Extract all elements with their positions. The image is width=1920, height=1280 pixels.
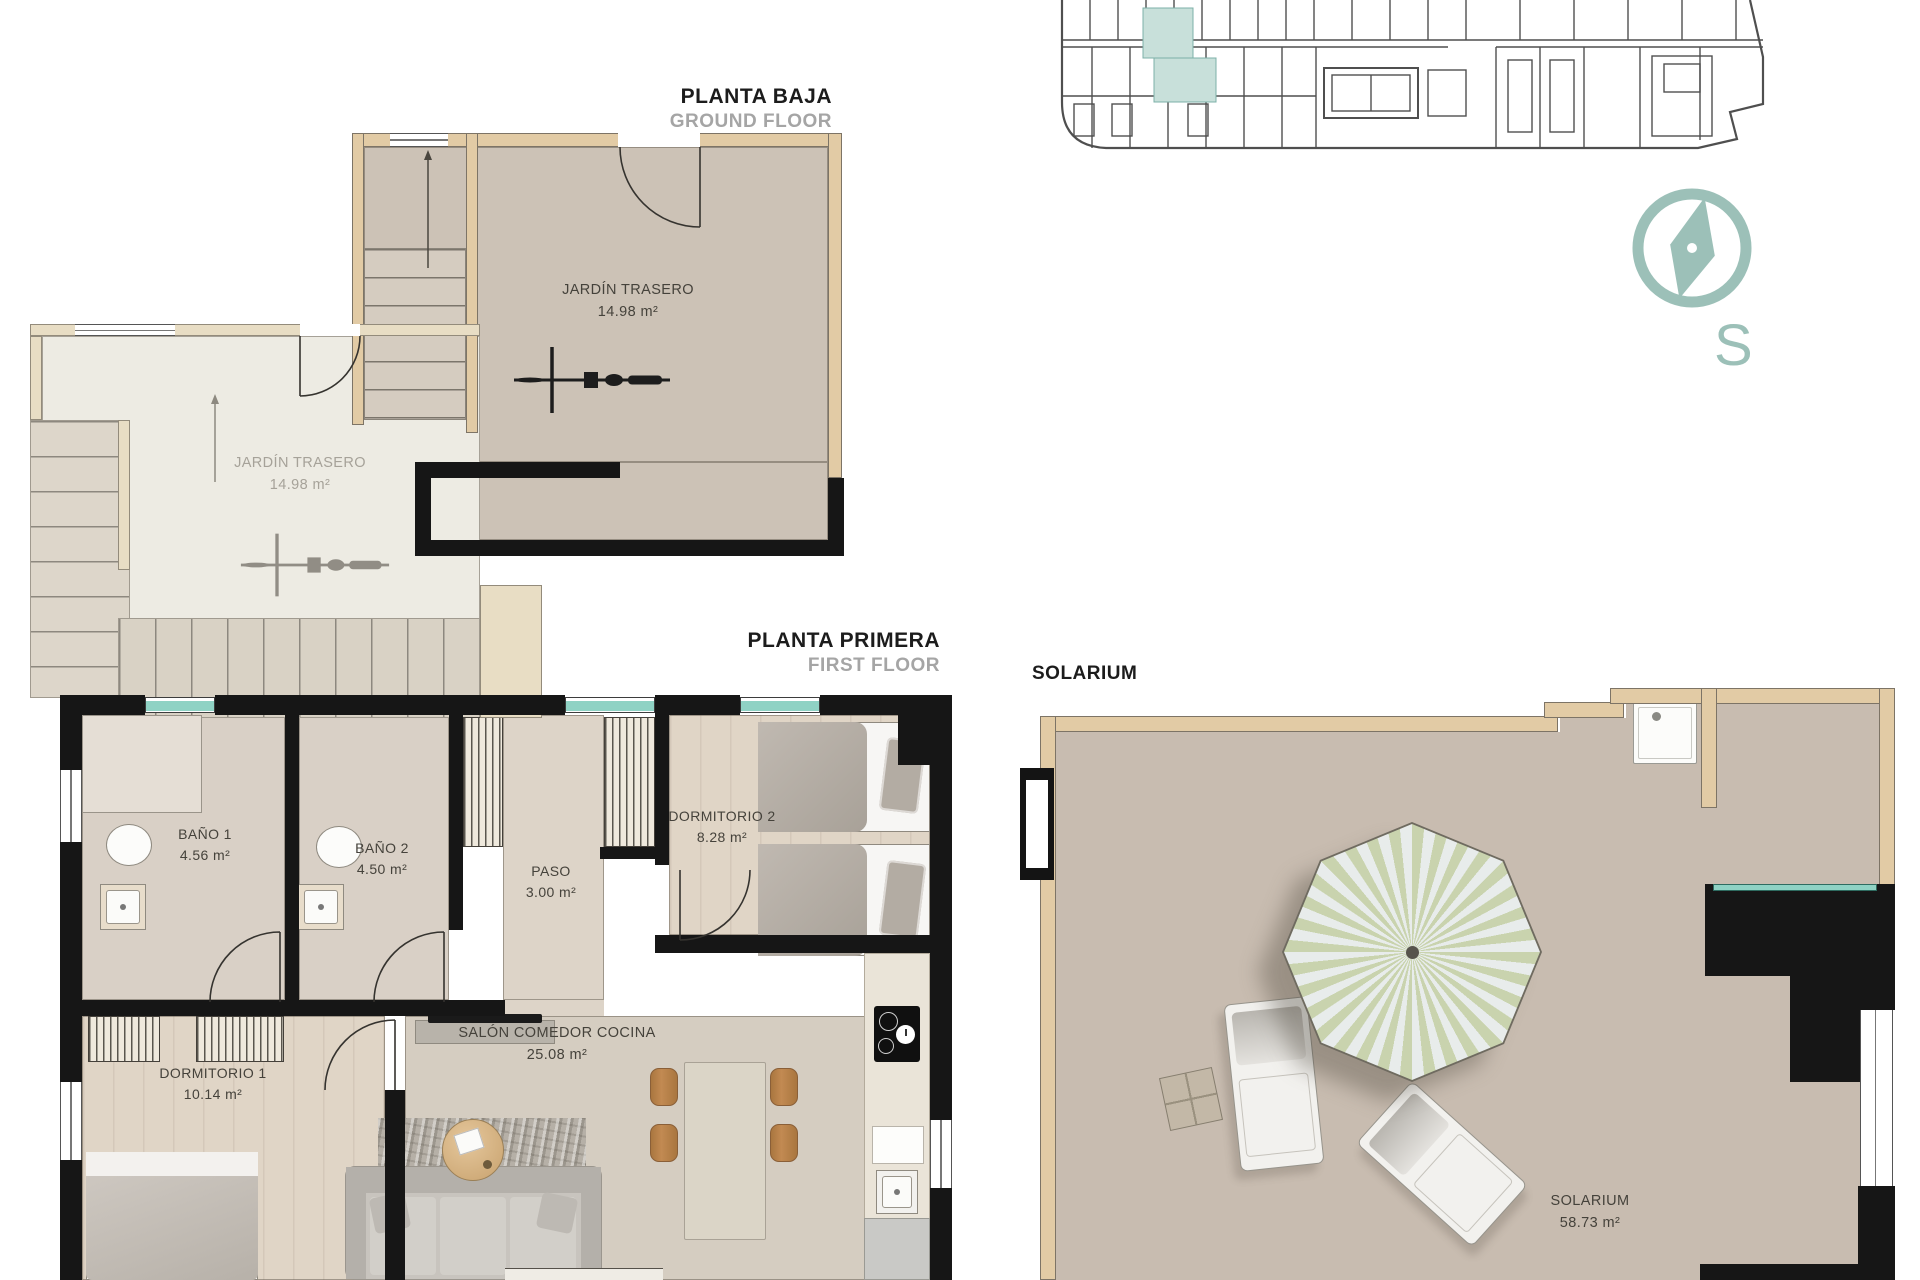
ground-floor-title: PLANTA BAJA GROUND FLOOR <box>600 84 832 133</box>
ff-window-top-1 <box>145 697 215 713</box>
room-label-paso: PASO 3.00 m² <box>526 861 576 903</box>
compass-south-letter: S <box>1714 312 1753 379</box>
sink-icon-bano2 <box>298 884 344 930</box>
room-label-jardin-b: JARDÍN TRASERO 14.98 m² <box>562 280 694 324</box>
kitchen-appliance <box>864 1218 930 1280</box>
wall-dorm1-salon <box>385 1090 405 1280</box>
sol-sink-frame <box>1790 960 1864 1082</box>
wall-bano1-bano2 <box>285 715 299 1000</box>
solarium-title: SOLARIUM <box>1032 662 1137 685</box>
wardrobe-dorm1-1 <box>88 1016 160 1062</box>
coffee-table <box>442 1119 504 1181</box>
sol-wall-protrusion <box>1701 688 1717 808</box>
side-table <box>1159 1067 1223 1131</box>
sol-wall-bottom-black <box>1700 1264 1895 1280</box>
site-plan-unit-highlight <box>1143 8 1216 102</box>
ff-wall-top-1 <box>82 695 145 715</box>
sol-window-right <box>1860 1010 1893 1186</box>
dining-table <box>684 1062 766 1240</box>
room-label-bano2: BAÑO 2 4.50 m² <box>355 838 409 880</box>
bed-dorm1 <box>86 1152 258 1280</box>
bano2-door-gap <box>449 930 463 1000</box>
hob-icon <box>874 1006 920 1062</box>
room-label-salon: SALÓN COMEDOR COCINA 25.08 m² <box>458 1023 655 1067</box>
gf-unita-window <box>75 324 175 336</box>
shower-tray <box>1633 702 1697 764</box>
dining-chair <box>770 1068 798 1106</box>
ff-wall-top-2 <box>215 695 565 715</box>
gf-unitb-stair-wall-inner <box>466 133 478 433</box>
sink-icon-bano1 <box>100 884 146 930</box>
ground-floor-title-en: GROUND FLOOR <box>600 110 832 133</box>
room-label-solarium: SOLARIUM 58.73 m² <box>1551 1191 1630 1235</box>
ff-window-left-2 <box>60 1082 82 1160</box>
dining-chair <box>650 1124 678 1162</box>
room-label-jardin-a: JARDÍN TRASERO 14.98 m² <box>234 453 366 497</box>
solarium-title-text: SOLARIUM <box>1032 662 1137 685</box>
bano1-shower <box>82 715 202 813</box>
wardrobe-dorm1-2 <box>196 1016 284 1062</box>
first-floor-title-es: PLANTA PRIMERA <box>700 628 940 654</box>
first-floor-title: PLANTA PRIMERA FIRST FLOOR <box>700 628 940 677</box>
sol-wall-right-black-top <box>1858 884 1895 1010</box>
room-label-dorm2: DORMITORIO 2 8.28 m² <box>668 806 775 848</box>
sofa <box>345 1166 602 1280</box>
gf-unitb-wall-int-black <box>415 462 620 478</box>
switch-panel <box>872 1126 924 1164</box>
gf-unita-door-gap <box>300 324 360 336</box>
ff-window-top-2 <box>565 697 655 713</box>
ff-window-left-1 <box>60 770 82 842</box>
ff-wall-top-3 <box>655 695 740 715</box>
closet-paso-right <box>604 717 655 847</box>
terrace-threshold <box>505 1268 663 1280</box>
room-label-bano1: BAÑO 1 4.56 m² <box>178 824 232 866</box>
first-floor-title-en: FIRST FLOOR <box>700 654 940 677</box>
gf-unitb-wall-bottom-black <box>415 540 842 556</box>
paso-floor <box>503 715 604 1000</box>
dining-chair <box>770 1124 798 1162</box>
gf-unita-stairs <box>30 420 130 698</box>
closet-paso-left <box>463 717 503 847</box>
ff-wall-corner-block <box>898 695 952 765</box>
floorplan-sheet: PLANTA BAJA GROUND FLOOR PLANTA PRIMERA … <box>0 0 1920 1280</box>
sol-kitchenette-glass <box>1713 884 1877 891</box>
wall-dorm2-salon <box>655 935 952 953</box>
gf-unitb-wall-rightseg-black <box>828 478 844 556</box>
gf-unitb-stair-wall-outer <box>352 133 364 425</box>
ff-window-right <box>930 1120 952 1188</box>
compass-icon <box>1638 192 1746 304</box>
room-label-dorm1: DORMITORIO 1 10.14 m² <box>159 1063 266 1105</box>
gf-unitb-door-gap <box>618 133 700 147</box>
ground-floor-title-es: PLANTA BAJA <box>600 84 832 110</box>
kitchen-sink <box>876 1170 918 1214</box>
wall-paso-dorm2 <box>655 715 669 865</box>
sol-wall-right <box>1879 688 1895 892</box>
parasol <box>1282 822 1542 1082</box>
gf-unita-wall-left <box>30 336 42 420</box>
site-plan-icon <box>1062 0 1763 148</box>
sol-wall-top-b <box>1544 702 1624 718</box>
dining-chair <box>650 1068 678 1106</box>
sol-left-window-block <box>1020 768 1054 880</box>
gf-unitb-window <box>390 133 448 147</box>
ff-window-top-3 <box>740 697 820 713</box>
parasol-hub <box>1406 946 1419 959</box>
gf-unita-stair-wall <box>118 420 130 570</box>
ff-wall-right <box>930 695 952 1280</box>
sol-wall-top-c <box>1610 688 1895 704</box>
solarium-floor-step1 <box>1560 718 1879 732</box>
gf-unitb-wall-right <box>828 133 842 478</box>
toilet-icon-bano1 <box>106 824 152 866</box>
wall-banos-bottom <box>80 1000 505 1016</box>
closet-cap-black <box>600 847 655 859</box>
sol-wall-top-a <box>1040 716 1558 732</box>
